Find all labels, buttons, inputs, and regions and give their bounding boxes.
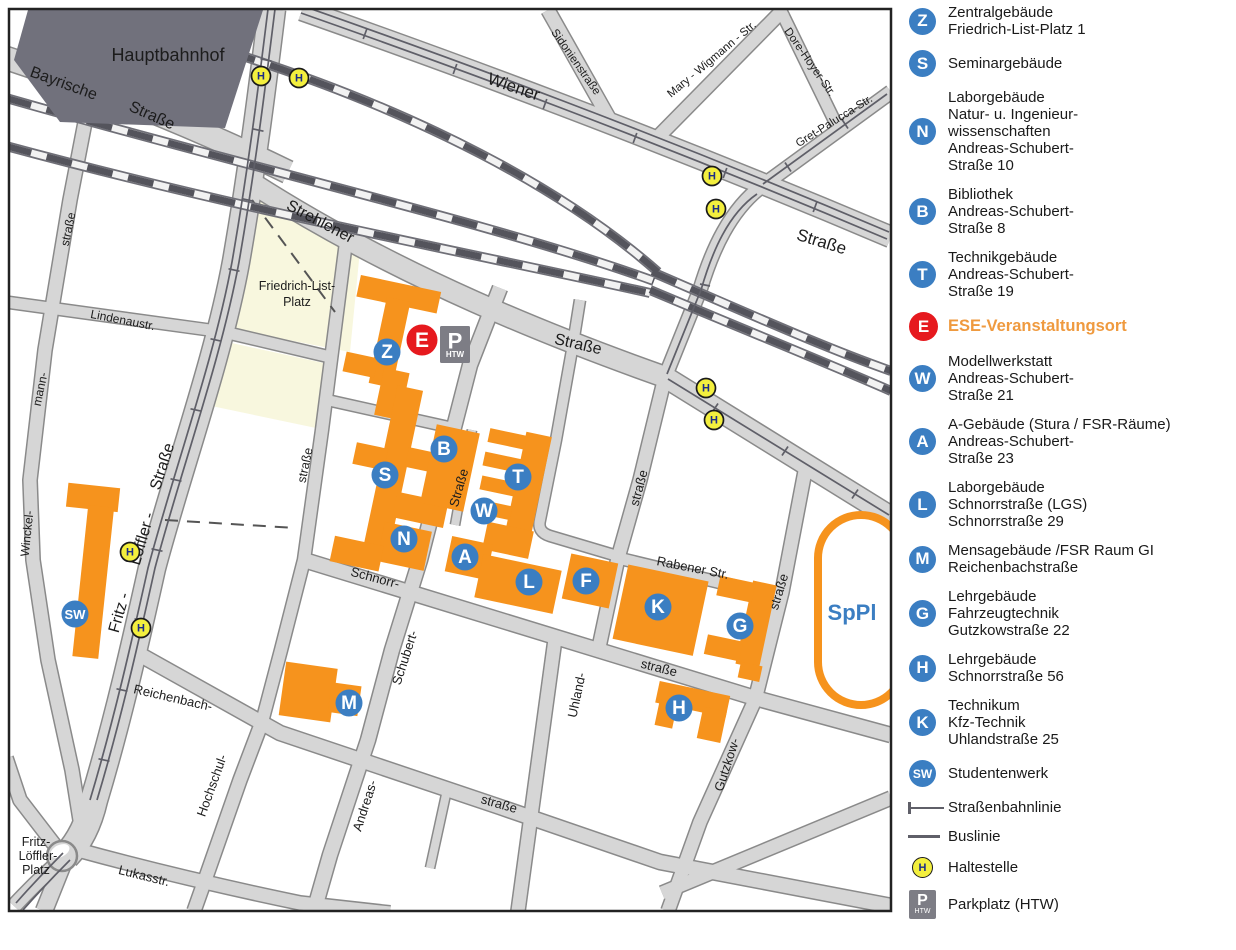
svg-text:SW: SW — [65, 607, 87, 622]
legend-marker-icon-B: B — [909, 198, 936, 225]
legend-item-label: Parkplatz (HTW) — [948, 896, 1059, 913]
tram-stop-icon: H — [705, 411, 724, 430]
building-marker-Z: Z — [374, 339, 401, 366]
building-marker-B: B — [431, 436, 458, 463]
tram-stop-icon: H — [290, 69, 309, 88]
svg-text:Z: Z — [381, 342, 393, 363]
legend-marker-icon-Z: Z — [909, 8, 936, 35]
map-label: Hauptbahnhof — [111, 45, 225, 65]
building-marker-H: H — [666, 695, 693, 722]
legend-marker-icon-G: G — [909, 600, 936, 627]
building-marker-W: W — [471, 498, 498, 525]
svg-text:H: H — [708, 171, 716, 183]
legend-item-W: WModellwerkstattAndreas-Schubert-Straße … — [906, 353, 1232, 404]
legend: ZZentralgebäudeFriedrich-List-Platz 1SSe… — [906, 4, 1232, 931]
bus-line-icon — [908, 835, 940, 838]
legend-item-label: LaborgebäudeNatur- u. Ingenieur-wissensc… — [948, 89, 1078, 174]
legend-item-bus: Buslinie — [906, 828, 1232, 845]
legend-item-E: EESE-Veranstaltungsort — [906, 312, 1232, 341]
map-label: Straße — [794, 225, 848, 258]
legend-item-G: GLehrgebäudeFahrzeugtechnikGutzkowstraße… — [906, 588, 1232, 639]
map-label: Platz — [22, 863, 50, 877]
map-label: straße — [627, 468, 651, 507]
svg-text:F: F — [580, 571, 592, 592]
svg-text:H: H — [672, 698, 686, 719]
map-label: Löffler- — [19, 849, 58, 863]
legend-item-H: HLehrgebäudeSchnorrstraße 56 — [906, 651, 1232, 685]
legend-item-label: Seminargebäude — [948, 55, 1062, 72]
tram-stop-icon: H — [252, 67, 271, 86]
legend-marker-icon-S: S — [909, 50, 936, 77]
building-marker-A: A — [452, 544, 479, 571]
building-marker-SW: SW — [62, 601, 89, 628]
tram-stop-icon: H — [697, 379, 716, 398]
map-label: Sidonienstraße — [548, 27, 602, 97]
legend-marker-icon-L: L — [909, 491, 936, 518]
tram-stop-icon: H — [703, 167, 722, 186]
legend-item-label: ModellwerkstattAndreas-Schubert-Straße 2… — [948, 353, 1074, 404]
legend-item-H: HHaltestelle — [906, 857, 1232, 878]
legend-marker-icon-SW: SW — [909, 760, 936, 787]
tram-stop-icon: H — [132, 619, 151, 638]
legend-marker-icon-E: E — [909, 312, 938, 341]
svg-text:HTW: HTW — [446, 350, 465, 359]
tram-stop-icon: H — [707, 200, 726, 219]
svg-text:H: H — [137, 623, 145, 635]
svg-text:E: E — [415, 329, 429, 352]
tram-line-icon — [908, 802, 944, 814]
legend-marker-icon-N: N — [909, 118, 936, 145]
campus-map-page: HauptbahnhofBayrischeStraßeWienerStraßeS… — [0, 0, 1236, 950]
legend-item-label: TechnikumKfz-TechnikUhlandstraße 25 — [948, 697, 1059, 748]
svg-text:L: L — [523, 572, 535, 593]
legend-item-M: MMensagebäude /FSR Raum GIReichenbachstr… — [906, 542, 1232, 576]
legend-item-label: ESE-Veranstaltungsort — [948, 318, 1127, 335]
building-marker-S: S — [372, 462, 399, 489]
svg-text:W: W — [475, 501, 493, 522]
svg-text:H: H — [710, 415, 718, 427]
legend-marker-icon-M: M — [909, 546, 936, 573]
legend-item-label: LehrgebäudeFahrzeugtechnikGutzkowstraße … — [948, 588, 1070, 639]
legend-item-L: LLaborgebäudeSchnorrstraße (LGS)Schnorrs… — [906, 479, 1232, 530]
building-marker-T: T — [505, 464, 532, 491]
map-label: SpPl — [828, 600, 877, 625]
building-marker-N: N — [391, 526, 418, 553]
stop-icon: H — [912, 857, 933, 878]
svg-text:H: H — [702, 383, 710, 395]
legend-item-Z: ZZentralgebäudeFriedrich-List-Platz 1 — [906, 4, 1232, 38]
legend-item-SW: SWStudentenwerk — [906, 760, 1232, 787]
svg-text:H: H — [295, 73, 303, 85]
building-marker-L: L — [516, 569, 543, 596]
svg-text:G: G — [733, 616, 748, 637]
legend-item-P: PHTWParkplatz (HTW) — [906, 890, 1232, 919]
building-marker-K: K — [645, 594, 672, 621]
svg-text:H: H — [126, 547, 134, 559]
building-marker-G: G — [727, 613, 754, 640]
legend-marker-icon-W: W — [909, 365, 936, 392]
legend-marker-icon-H: H — [909, 655, 936, 682]
legend-item-S: SSeminargebäude — [906, 50, 1232, 77]
building-SW — [50, 483, 120, 659]
legend-item-label: ZentralgebäudeFriedrich-List-Platz 1 — [948, 4, 1086, 38]
legend-item-label: Straßenbahnlinie — [948, 799, 1061, 816]
parking-icon: PHTW — [440, 326, 470, 363]
legend-item-K: KTechnikumKfz-TechnikUhlandstraße 25 — [906, 697, 1232, 748]
map-label: Fritz- — [22, 835, 50, 849]
svg-text:N: N — [397, 529, 411, 550]
legend-item-label: LehrgebäudeSchnorrstraße 56 — [948, 651, 1064, 685]
map-label: Uhland- — [565, 671, 589, 719]
map-overlay: HauptbahnhofBayrischeStraßeWienerStraßeS… — [18, 19, 877, 889]
parking-legend-icon: PHTW — [909, 890, 936, 919]
map-label: Lindenaustr. — [89, 307, 156, 333]
tram-stop-icon: H — [121, 543, 140, 562]
legend-item-label: TechnikgebäudeAndreas-Schubert-Straße 19 — [948, 249, 1074, 300]
legend-item-label: BibliothekAndreas-Schubert-Straße 8 — [948, 186, 1074, 237]
legend-item-label: LaborgebäudeSchnorrstraße (LGS)Schnorrst… — [948, 479, 1087, 530]
map-label: Gutzkow- — [711, 736, 742, 793]
svg-text:B: B — [437, 439, 451, 460]
legend-item-label: Haltestelle — [948, 859, 1018, 876]
legend-item-label: Buslinie — [948, 828, 1001, 845]
building-marker-M: M — [336, 690, 363, 717]
map-label: Platz — [283, 295, 311, 309]
legend-item-tram: Straßenbahnlinie — [906, 799, 1232, 816]
legend-item-T: TTechnikgebäudeAndreas-Schubert-Straße 1… — [906, 249, 1232, 300]
legend-item-label: Mensagebäude /FSR Raum GIReichenbachstra… — [948, 542, 1154, 576]
map-label: Dore-Hoyer-Str. — [781, 26, 837, 99]
campus-map: HauptbahnhofBayrischeStraßeWienerStraßeS… — [6, 6, 895, 915]
legend-item-A: AA-Gebäude (Stura / FSR-Räume)Andreas-Sc… — [906, 416, 1232, 467]
building-marker-F: F — [573, 568, 600, 595]
legend-item-N: NLaborgebäudeNatur- u. Ingenieur-wissens… — [906, 89, 1232, 174]
svg-text:M: M — [341, 693, 357, 714]
legend-item-label: Studentenwerk — [948, 765, 1048, 782]
legend-marker-icon-T: T — [909, 261, 936, 288]
map-label: Friedrich-List- — [259, 279, 335, 293]
svg-text:T: T — [512, 467, 524, 488]
legend-marker-icon-A: A — [909, 428, 936, 455]
svg-text:S: S — [379, 465, 392, 486]
event-marker-E: E — [407, 325, 438, 356]
svg-text:A: A — [458, 547, 472, 568]
legend-item-label: A-Gebäude (Stura / FSR-Räume)Andreas-Sch… — [948, 416, 1171, 467]
svg-text:H: H — [257, 71, 265, 83]
svg-text:K: K — [651, 597, 665, 618]
legend-item-B: BBibliothekAndreas-Schubert-Straße 8 — [906, 186, 1232, 237]
svg-text:H: H — [712, 204, 720, 216]
legend-marker-icon-K: K — [909, 709, 936, 736]
map-label: Wiener — [485, 69, 542, 105]
